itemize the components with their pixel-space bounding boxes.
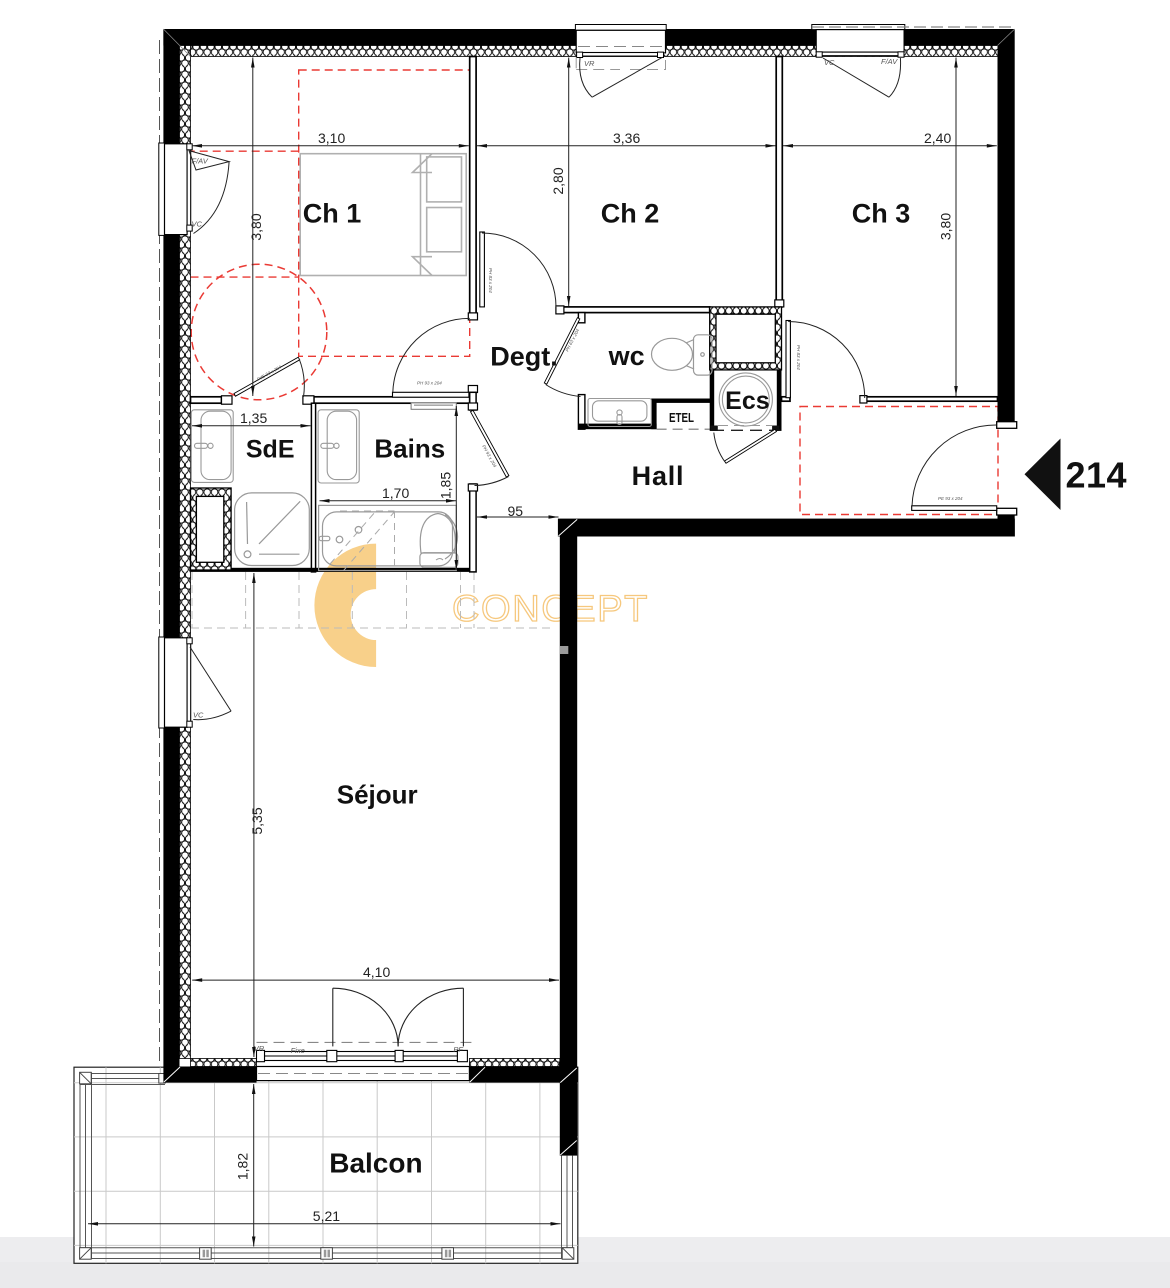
svg-text:Ch 2: Ch 2 — [601, 199, 660, 229]
svg-text:1,70: 1,70 — [382, 485, 409, 501]
svg-text:VC: VC — [192, 220, 203, 229]
svg-text:PF: PF — [453, 1045, 463, 1054]
svg-text:SdE: SdE — [246, 435, 295, 463]
svg-text:PH 83 x 204: PH 83 x 204 — [488, 268, 493, 293]
svg-text:Degt.: Degt. — [490, 342, 558, 372]
svg-text:2,80: 2,80 — [550, 167, 566, 194]
svg-text:1,82: 1,82 — [235, 1153, 251, 1180]
svg-text:Hall: Hall — [632, 461, 685, 491]
svg-text:VC: VC — [824, 58, 835, 67]
svg-text:3,36: 3,36 — [613, 130, 640, 146]
svg-text:3,80: 3,80 — [938, 213, 954, 240]
svg-text:95: 95 — [508, 503, 524, 519]
svg-text:4,10: 4,10 — [363, 964, 390, 980]
svg-text:PE 93 x 204: PE 93 x 204 — [938, 496, 963, 501]
svg-text:CONCEPT: CONCEPT — [452, 588, 649, 629]
svg-text:Ecs: Ecs — [725, 387, 769, 415]
svg-text:Ch 1: Ch 1 — [303, 199, 362, 229]
svg-text:5,35: 5,35 — [249, 807, 265, 834]
svg-text:Bains: Bains — [374, 433, 445, 463]
svg-text:3,10: 3,10 — [318, 130, 345, 146]
svg-text:3,80: 3,80 — [248, 213, 264, 240]
svg-text:F/AV: F/AV — [192, 157, 209, 166]
svg-text:5,21: 5,21 — [313, 1208, 340, 1224]
svg-text:Séjour: Séjour — [337, 780, 418, 810]
svg-text:PH 83 x 204: PH 83 x 204 — [796, 345, 801, 370]
svg-text:PH 93 x 204: PH 93 x 204 — [417, 381, 442, 386]
svg-text:214: 214 — [1066, 455, 1128, 496]
svg-text:Fixe: Fixe — [291, 1046, 305, 1055]
svg-text:VC: VC — [193, 711, 204, 720]
svg-text:Balcon: Balcon — [329, 1147, 422, 1178]
svg-text:VR: VR — [254, 1044, 265, 1053]
svg-text:ETEL: ETEL — [669, 411, 694, 425]
svg-text:VR: VR — [584, 59, 595, 68]
svg-text:1,35: 1,35 — [240, 410, 267, 426]
svg-text:1,85: 1,85 — [438, 472, 454, 499]
svg-text:2,40: 2,40 — [924, 130, 951, 146]
svg-text:wc: wc — [608, 341, 645, 371]
svg-text:F/AV: F/AV — [881, 57, 898, 66]
svg-text:Ch 3: Ch 3 — [852, 199, 911, 229]
